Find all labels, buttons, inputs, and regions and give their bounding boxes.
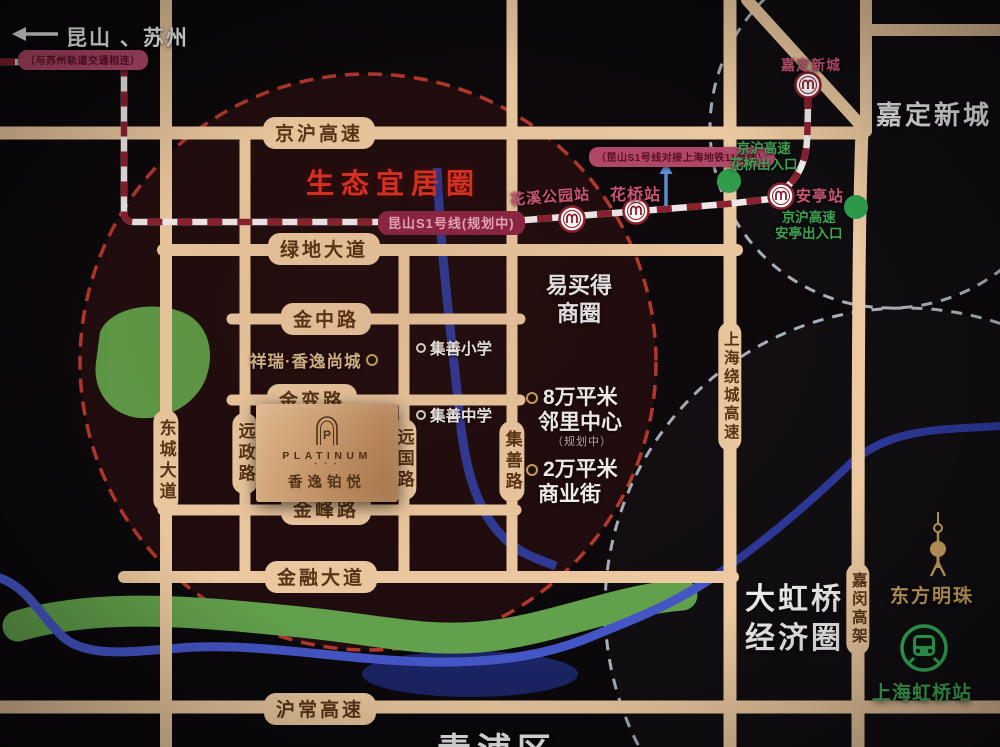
poi-commercial-street: 2万平米 商业街 bbox=[526, 458, 618, 508]
line11-arrow-icon bbox=[660, 162, 673, 206]
project-card: P PLATINUM • • • 香逸铂悦 bbox=[256, 404, 398, 502]
direction-label: 昆山 、苏州 bbox=[66, 22, 189, 52]
poi-jishan-primary: 集善小学 bbox=[416, 337, 492, 359]
area-hongqiao: 大虹桥 经济圈 bbox=[745, 580, 844, 658]
anting-exit-line2: 安亭出入口 bbox=[775, 226, 843, 242]
road-label-yuanzheng: 远政路 bbox=[232, 413, 257, 494]
neighborhood-line1: 8万平米 bbox=[543, 386, 618, 411]
poi-marker-icon bbox=[526, 392, 538, 404]
project-brand: PLATINUM bbox=[282, 450, 371, 462]
road-label-jiamin: 嘉闵高架 bbox=[846, 563, 869, 655]
poi-marker-icon bbox=[526, 464, 538, 476]
area-jiading-new-town: 嘉定新城 bbox=[876, 95, 992, 132]
train-station-icon bbox=[902, 626, 946, 670]
poi-xiangrui-label: 祥瑞·香逸尚城 bbox=[250, 348, 362, 372]
station-jiading-new-town: 嘉定新城 bbox=[781, 55, 841, 75]
huaqiao-exit-label: 京沪高速 花桥出入口 bbox=[730, 141, 798, 173]
huaqiao-exit-line1: 京沪高速 bbox=[730, 141, 798, 157]
poi-neighborhood-center: 8万平米 邻里中心 （规划中） bbox=[526, 386, 622, 449]
anting-exit-dot bbox=[844, 195, 868, 219]
anting-exit-line1: 京沪高速 bbox=[775, 210, 843, 226]
area-qingpu: 青浦区 bbox=[437, 723, 557, 747]
project-name: 香逸铂悦 bbox=[288, 471, 366, 492]
metro-icon-huaxi bbox=[560, 207, 585, 232]
school-marker-icon bbox=[416, 343, 426, 353]
area-oriental-pearl: 东方明珠 bbox=[890, 581, 974, 608]
s1-line-badge: 昆山S1号线(规划中) bbox=[378, 211, 525, 235]
area-hongqiao-line1: 大虹桥 bbox=[745, 580, 844, 619]
metro-icon-jiading bbox=[796, 73, 821, 98]
huaqiao-exit-line2: 花桥出入口 bbox=[730, 157, 798, 173]
road-label-huchang: 沪常高速 bbox=[264, 693, 376, 725]
area-emart: 易买得 商圈 bbox=[546, 272, 612, 327]
area-emart-line1: 易买得 bbox=[546, 272, 612, 300]
neighborhood-line2: 邻里中心 bbox=[538, 411, 622, 436]
card-ornament: • • • bbox=[315, 463, 340, 467]
metro-icon-anting bbox=[769, 184, 794, 209]
neighborhood-note: （规划中） bbox=[552, 436, 622, 449]
location-map: 昆山 、苏州 （与苏州轨道交通相连） 生态宜居圈 昆山S1号线(规划中) （昆山… bbox=[0, 0, 1000, 747]
area-hongqiao-line2: 经济圈 bbox=[745, 619, 844, 658]
road-label-lvdi: 绿地大道 bbox=[268, 233, 380, 265]
station-huaqiao: 花桥站 bbox=[610, 181, 661, 205]
anting-exit-label: 京沪高速 安亭出入口 bbox=[775, 210, 843, 242]
poi-xiangrui: 祥瑞·香逸尚城 bbox=[250, 348, 378, 372]
road-label-jishan: 集善路 bbox=[499, 421, 524, 502]
poi-jishan-primary-label: 集善小学 bbox=[430, 337, 492, 359]
estate-marker-icon bbox=[366, 354, 378, 366]
commercial-line2: 商业街 bbox=[538, 483, 618, 508]
poi-jishan-middle-label: 集善中学 bbox=[430, 404, 492, 426]
area-hongqiao-station: 上海虹桥站 bbox=[872, 678, 972, 705]
commercial-line1: 2万平米 bbox=[543, 458, 618, 483]
suzhou-link-badge: （与苏州轨道交通相连） bbox=[18, 50, 148, 70]
poi-jishan-middle: 集善中学 bbox=[416, 404, 492, 426]
west-arrow-icon bbox=[12, 27, 58, 41]
road-label-jinghu: 京沪高速 bbox=[263, 117, 375, 149]
road-label-jinrong: 金融大道 bbox=[265, 561, 377, 593]
school-marker-icon bbox=[416, 410, 426, 420]
project-monogram: P bbox=[323, 428, 331, 442]
arch-logo-icon: P bbox=[310, 415, 344, 447]
road-label-dongcheng: 东城大道 bbox=[153, 410, 178, 512]
road-label-raocheng: 上海绕城高速 bbox=[718, 322, 741, 451]
road-label-jinzhong: 金中路 bbox=[281, 303, 371, 335]
station-anting: 安亭站 bbox=[796, 185, 844, 206]
eco-circle-title: 生态宜居圈 bbox=[306, 162, 481, 202]
area-emart-line2: 商圈 bbox=[546, 300, 612, 328]
